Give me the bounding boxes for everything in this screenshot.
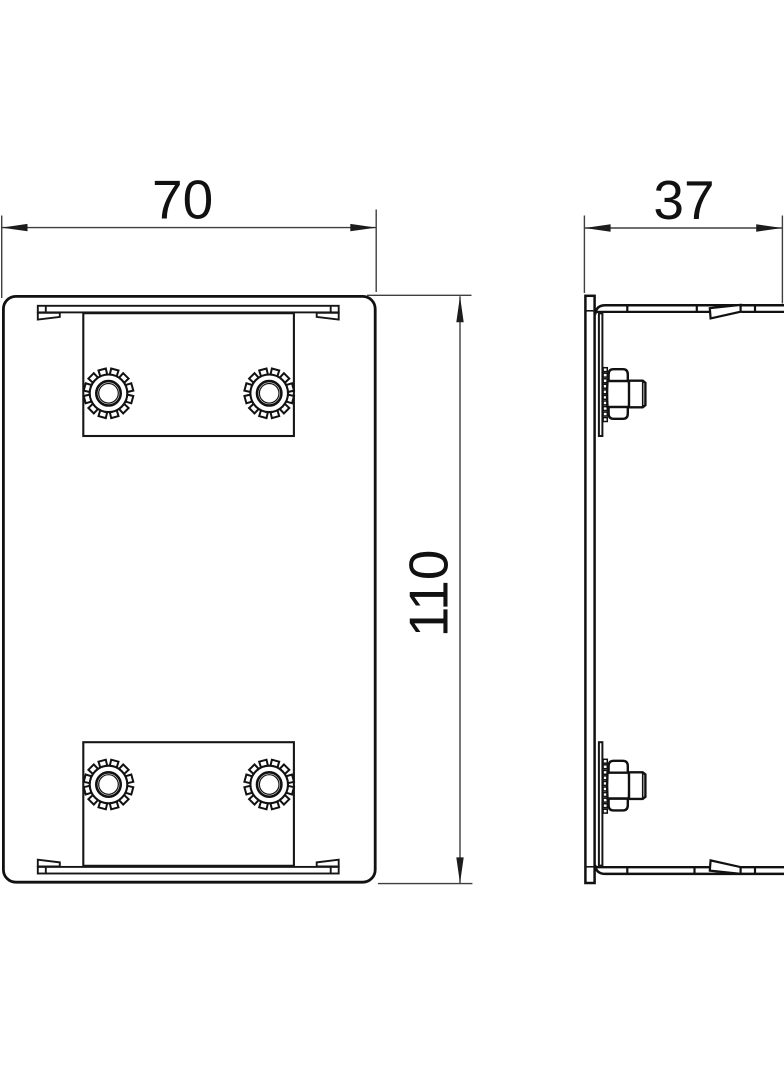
svg-text:37: 37: [653, 169, 714, 231]
svg-text:70: 70: [152, 169, 213, 231]
svg-text:110: 110: [398, 550, 460, 638]
